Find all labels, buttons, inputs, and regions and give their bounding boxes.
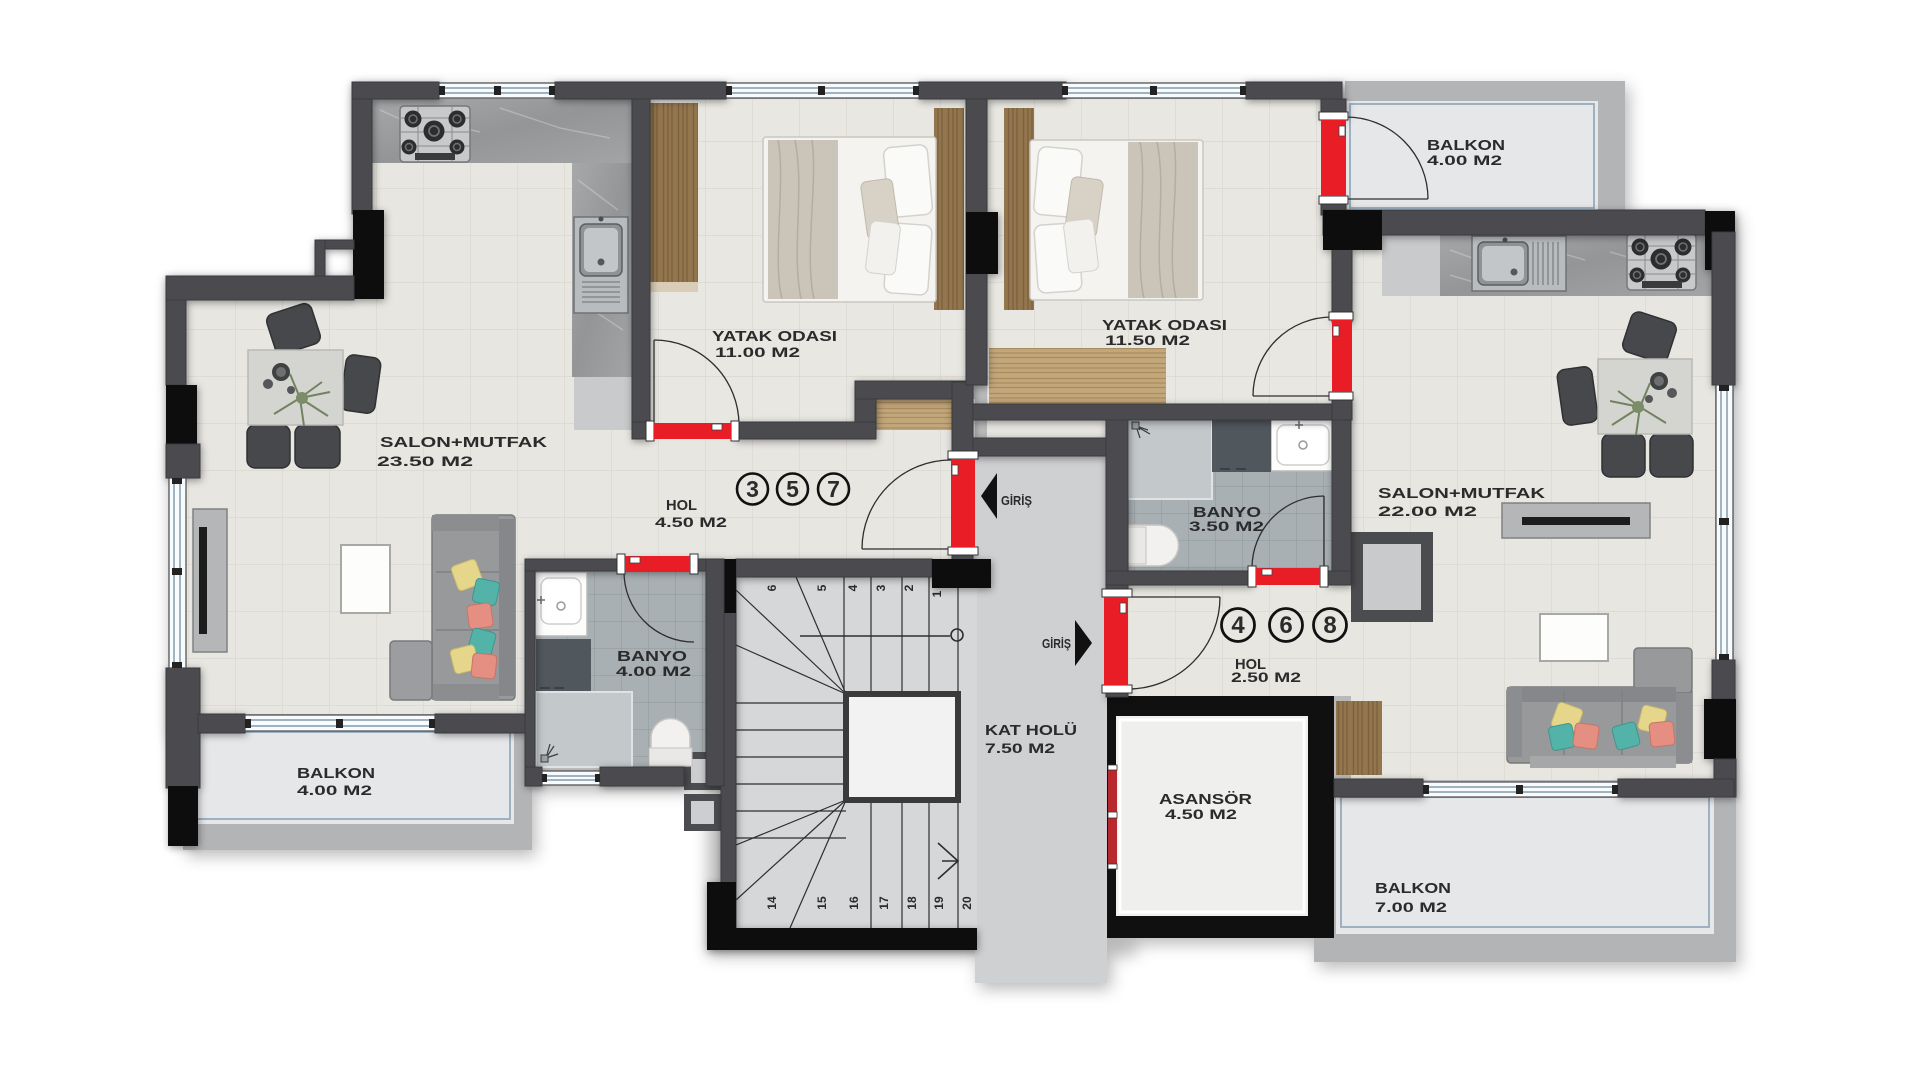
svg-text:17: 17 (877, 896, 891, 910)
svg-text:SALON+MUTFAK: SALON+MUTFAK (380, 434, 547, 451)
svg-text:15: 15 (815, 896, 829, 910)
svg-text:2: 2 (902, 584, 916, 591)
svg-text:6: 6 (1279, 612, 1292, 639)
svg-text:4: 4 (846, 584, 860, 591)
svg-text:11.50 M2: 11.50 M2 (1105, 332, 1190, 348)
svg-text:5: 5 (815, 584, 829, 591)
svg-text:16: 16 (847, 896, 861, 910)
svg-text:2.50 M2: 2.50 M2 (1231, 669, 1301, 685)
svg-text:6: 6 (765, 584, 779, 591)
svg-text:KAT HOLÜ: KAT HOLÜ (985, 722, 1077, 739)
svg-text:20: 20 (960, 896, 974, 910)
svg-text:SALON+MUTFAK: SALON+MUTFAK (1378, 485, 1545, 502)
svg-text:3.50 M2: 3.50 M2 (1189, 518, 1264, 534)
svg-text:7: 7 (827, 476, 840, 502)
svg-text:3: 3 (874, 584, 888, 591)
svg-text:14: 14 (765, 896, 779, 910)
svg-text:4.00 M2: 4.00 M2 (616, 663, 691, 679)
svg-text:22.00 M2: 22.00 M2 (1378, 503, 1477, 519)
svg-text:GİRİŞ: GİRİŞ (1042, 636, 1071, 651)
svg-text:18: 18 (905, 896, 919, 910)
svg-text:1: 1 (930, 590, 944, 597)
svg-text:BALKON: BALKON (297, 765, 375, 782)
svg-text:4.00 M2: 4.00 M2 (1427, 152, 1502, 168)
svg-text:GİRİŞ: GİRİŞ (1001, 493, 1032, 508)
svg-text:11.00 M2: 11.00 M2 (715, 344, 800, 360)
svg-text:YATAK ODASI: YATAK ODASI (712, 328, 837, 345)
svg-text:7.50 M2: 7.50 M2 (985, 740, 1055, 756)
svg-text:4.00 M2: 4.00 M2 (297, 782, 372, 798)
svg-text:BALKON: BALKON (1375, 880, 1451, 897)
svg-text:4: 4 (1231, 612, 1245, 639)
svg-text:7.00 M2: 7.00 M2 (1375, 899, 1447, 915)
svg-text:5: 5 (786, 476, 799, 502)
svg-text:3: 3 (746, 476, 759, 502)
svg-text:23.50 M2: 23.50 M2 (377, 453, 473, 469)
svg-text:4.50 M2: 4.50 M2 (655, 514, 727, 530)
svg-text:4.50 M2: 4.50 M2 (1165, 806, 1237, 822)
svg-text:19: 19 (932, 896, 946, 910)
svg-text:8: 8 (1323, 612, 1336, 639)
svg-text:HOL: HOL (666, 497, 697, 514)
